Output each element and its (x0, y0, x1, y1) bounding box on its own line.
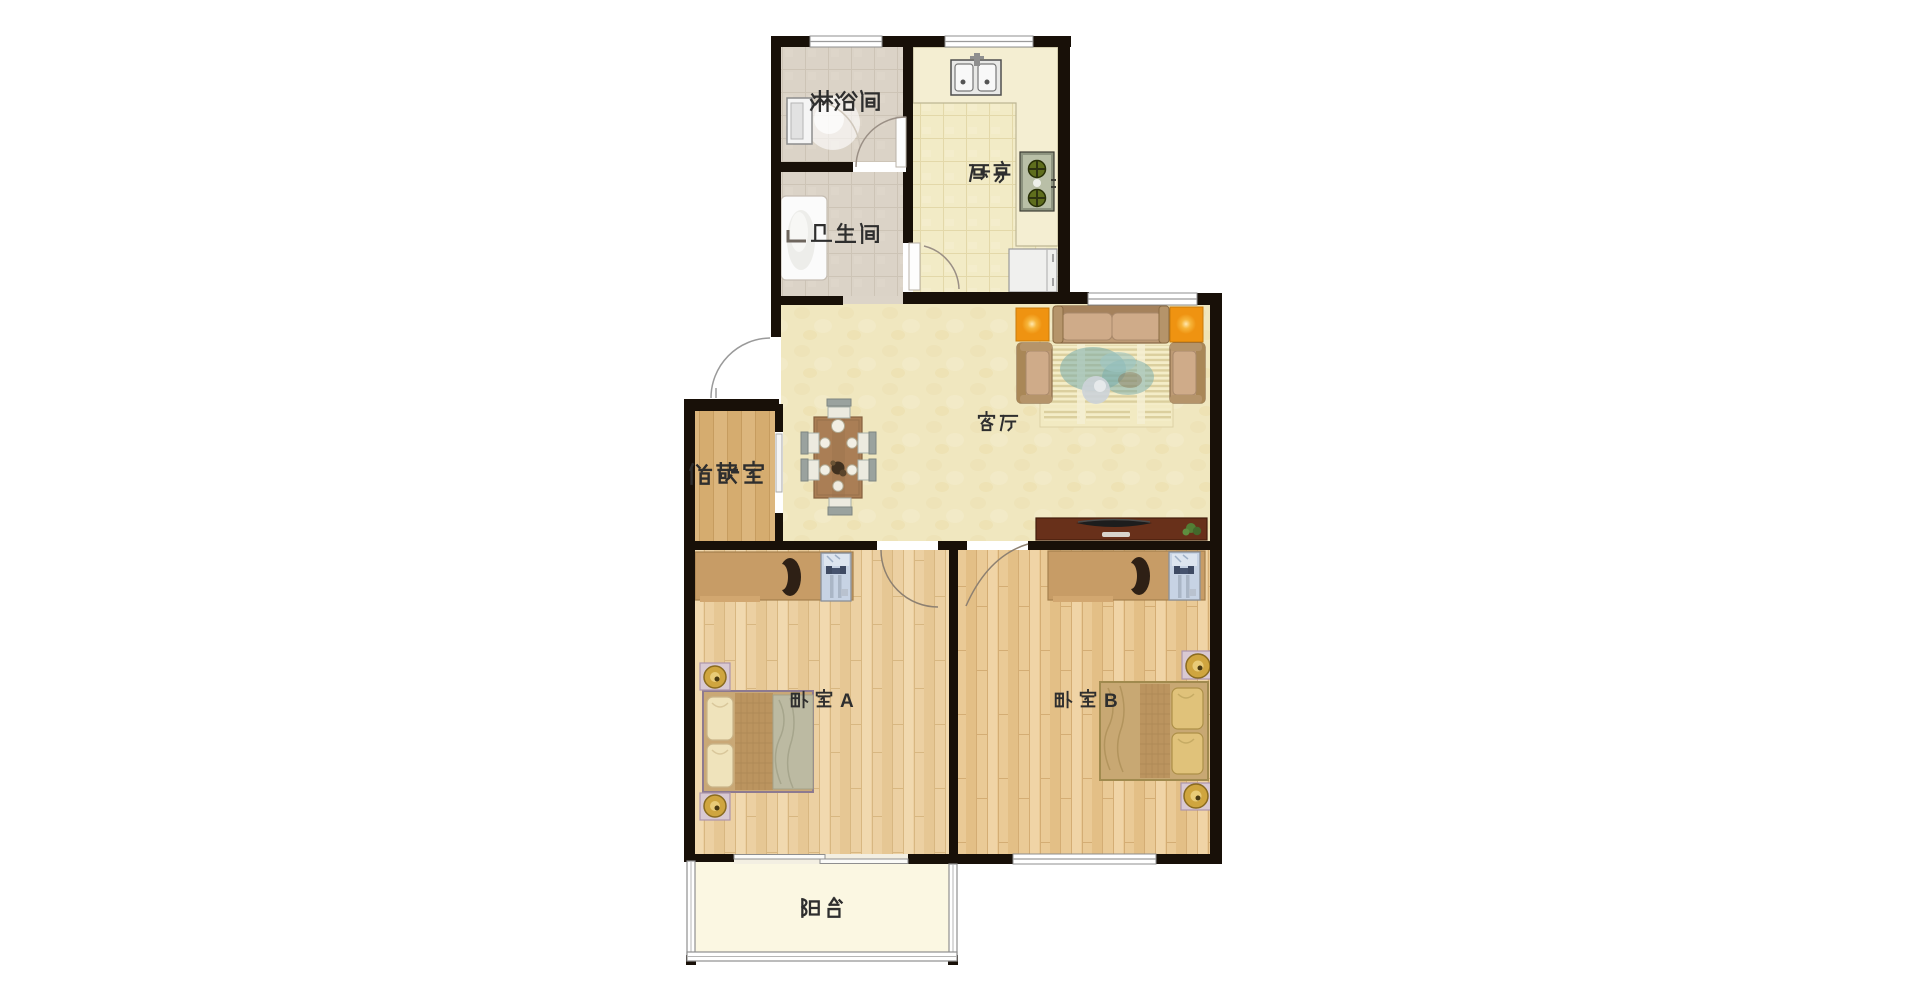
svg-text:A: A (840, 691, 854, 712)
svg-text:B: B (1104, 691, 1118, 712)
